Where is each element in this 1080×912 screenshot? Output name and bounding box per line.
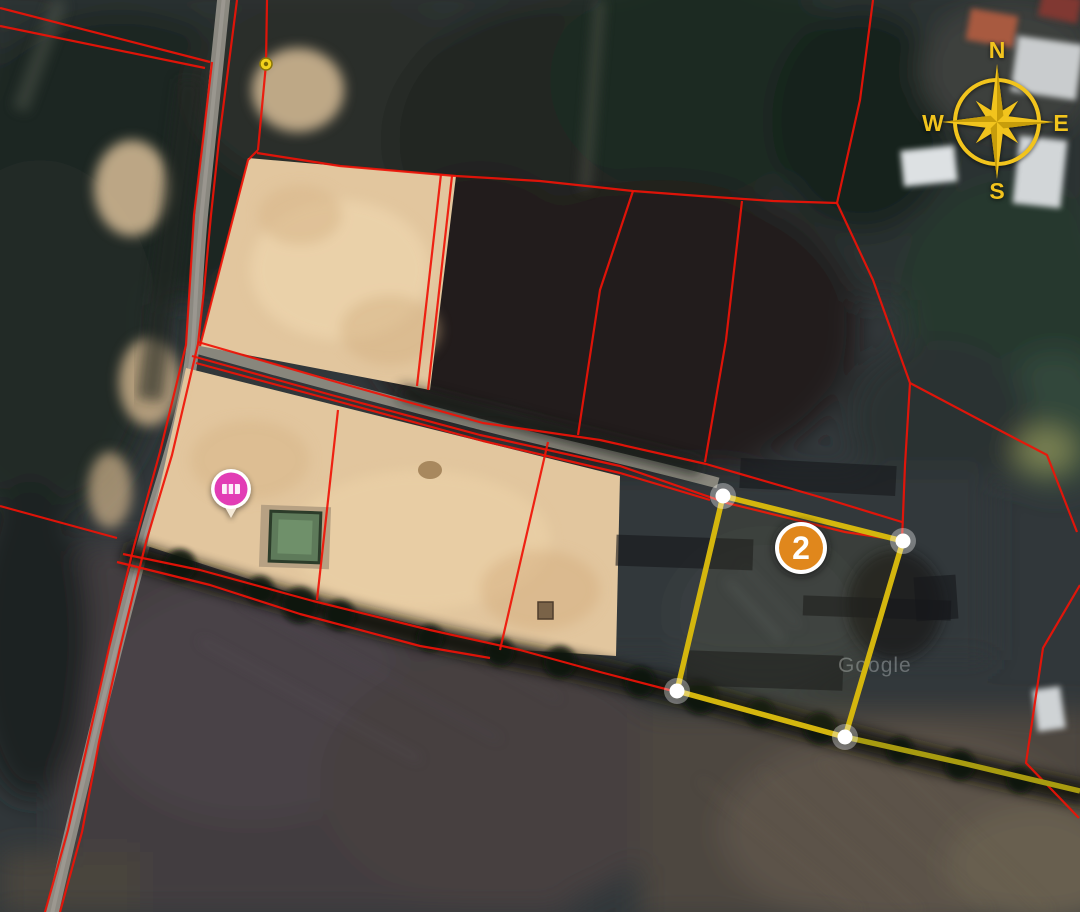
gray-roof-building xyxy=(1010,36,1080,101)
plot-vertex-handle[interactable] xyxy=(896,534,911,549)
ground-spot xyxy=(418,461,442,479)
waypoint-pin-center xyxy=(264,62,268,66)
compass-label-west: W xyxy=(922,110,944,136)
white-roof-building-2 xyxy=(1013,136,1068,209)
listing-pin-glyph-slit2 xyxy=(233,484,235,494)
plot-vertex-handle[interactable] xyxy=(670,684,685,699)
redaction-bar xyxy=(914,575,959,622)
plot-vertex-handle[interactable] xyxy=(716,489,731,504)
white-roof-building xyxy=(900,145,957,186)
plot-number-marker[interactable]: 2 xyxy=(771,518,831,578)
plot-vertex-handle[interactable] xyxy=(838,730,853,745)
pond-water xyxy=(277,519,312,554)
small-structure xyxy=(538,602,553,619)
compass-label-east: E xyxy=(1053,110,1068,136)
waypoint-pin[interactable] xyxy=(260,58,272,70)
plot-marker-number: 2 xyxy=(792,530,810,566)
listing-pin-glyph xyxy=(222,484,240,494)
terrain xyxy=(0,0,1080,912)
compass-label-south: S xyxy=(989,178,1004,204)
pond xyxy=(259,505,331,569)
listing-pin-glyph-slit xyxy=(227,484,229,494)
satellite-map: Google 2 N xyxy=(0,0,1080,912)
compass-label-north: N xyxy=(989,37,1006,63)
